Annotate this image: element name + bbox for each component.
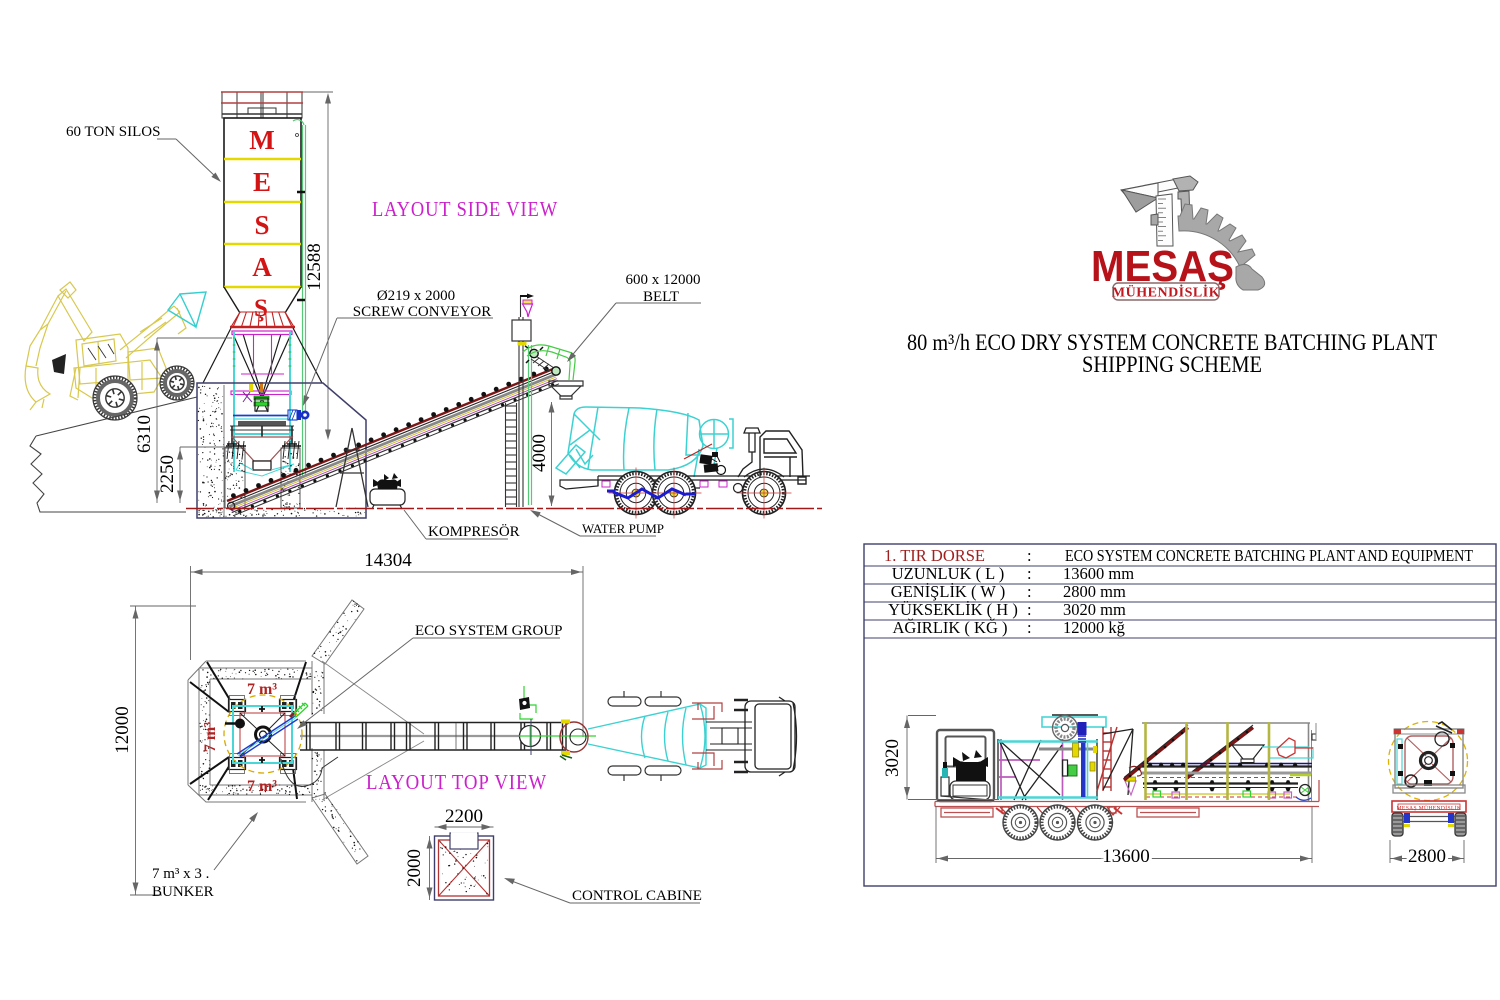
svg-text:Ø219 x 2000: Ø219 x 2000: [377, 288, 455, 304]
svg-text:AĞIRLIK ( KĞ ): AĞIRLIK ( KĞ ): [892, 618, 1007, 637]
svg-text:M: M: [249, 125, 274, 155]
svg-text:7 m³: 7 m³: [247, 681, 277, 698]
svg-text:12588: 12588: [304, 243, 325, 291]
svg-text:LAYOUT SIDE VIEW: LAYOUT SIDE VIEW: [372, 197, 558, 221]
svg-text:13600 mm: 13600 mm: [1063, 564, 1134, 583]
svg-text::: :: [1027, 618, 1032, 637]
svg-text:A: A: [252, 252, 272, 282]
svg-text:2800: 2800: [1408, 846, 1446, 867]
svg-text::: :: [1027, 600, 1032, 619]
svg-text:2800 mm: 2800 mm: [1063, 582, 1126, 601]
svg-text:2000: 2000: [404, 849, 425, 887]
svg-text:ECO SYSTEM GROUP: ECO SYSTEM GROUP: [415, 623, 563, 639]
svg-text:1. TIR DORSE: 1. TIR DORSE: [884, 546, 985, 565]
svg-text:3020 mm: 3020 mm: [1063, 600, 1126, 619]
svg-text:GENİŞLİK ( W ): GENİŞLİK ( W ): [891, 582, 1005, 601]
svg-text:E: E: [253, 167, 271, 197]
svg-text:BUNKER: BUNKER: [152, 884, 214, 900]
svg-text:2250: 2250: [157, 455, 178, 493]
svg-text:600 x 12000: 600 x 12000: [626, 272, 701, 288]
svg-text:60 TON SILOS: 60 TON SILOS: [66, 124, 160, 140]
svg-text:13600: 13600: [1102, 846, 1150, 867]
svg-text:12000 kğ: 12000 kğ: [1063, 618, 1125, 637]
svg-text:4000: 4000: [529, 434, 550, 472]
svg-text:7 m³: 7 m³: [247, 778, 277, 795]
svg-text:6310: 6310: [134, 415, 155, 453]
svg-text:3020: 3020: [882, 739, 903, 777]
svg-text:KOMPRESÖR: KOMPRESÖR: [428, 523, 520, 540]
svg-text:7 m³: 7 m³: [202, 722, 219, 752]
svg-text:YÜKSEKLİK ( H ): YÜKSEKLİK ( H ): [888, 600, 1018, 619]
svg-text:12000: 12000: [112, 706, 133, 754]
svg-text:WATER PUMP: WATER PUMP: [582, 521, 664, 536]
svg-text:MÜHENDİSLİK: MÜHENDİSLİK: [1112, 284, 1220, 301]
svg-text:S: S: [254, 210, 269, 240]
svg-text:7 m³ x 3 .: 7 m³ x 3 .: [152, 866, 209, 882]
svg-text:UZUNLUK ( L ): UZUNLUK ( L ): [892, 564, 1005, 583]
svg-text:SHIPPING SCHEME: SHIPPING SCHEME: [1082, 352, 1262, 377]
svg-text:MESAŞ MÜHENDİSLİK: MESAŞ MÜHENDİSLİK: [1397, 805, 1462, 812]
svg-text::: :: [1027, 582, 1032, 601]
svg-text:ECO SYSTEM CONCRETE BATCHING P: ECO SYSTEM CONCRETE BATCHING PLANT AND E…: [1065, 546, 1473, 565]
svg-text:CONTROL CABINE: CONTROL CABINE: [572, 888, 702, 904]
svg-text:14304: 14304: [364, 550, 412, 571]
svg-text::: :: [1027, 546, 1032, 565]
svg-text:LAYOUT TOP VIEW: LAYOUT TOP VIEW: [366, 770, 547, 794]
svg-text::: :: [1027, 564, 1032, 583]
svg-text:2200: 2200: [445, 806, 483, 827]
